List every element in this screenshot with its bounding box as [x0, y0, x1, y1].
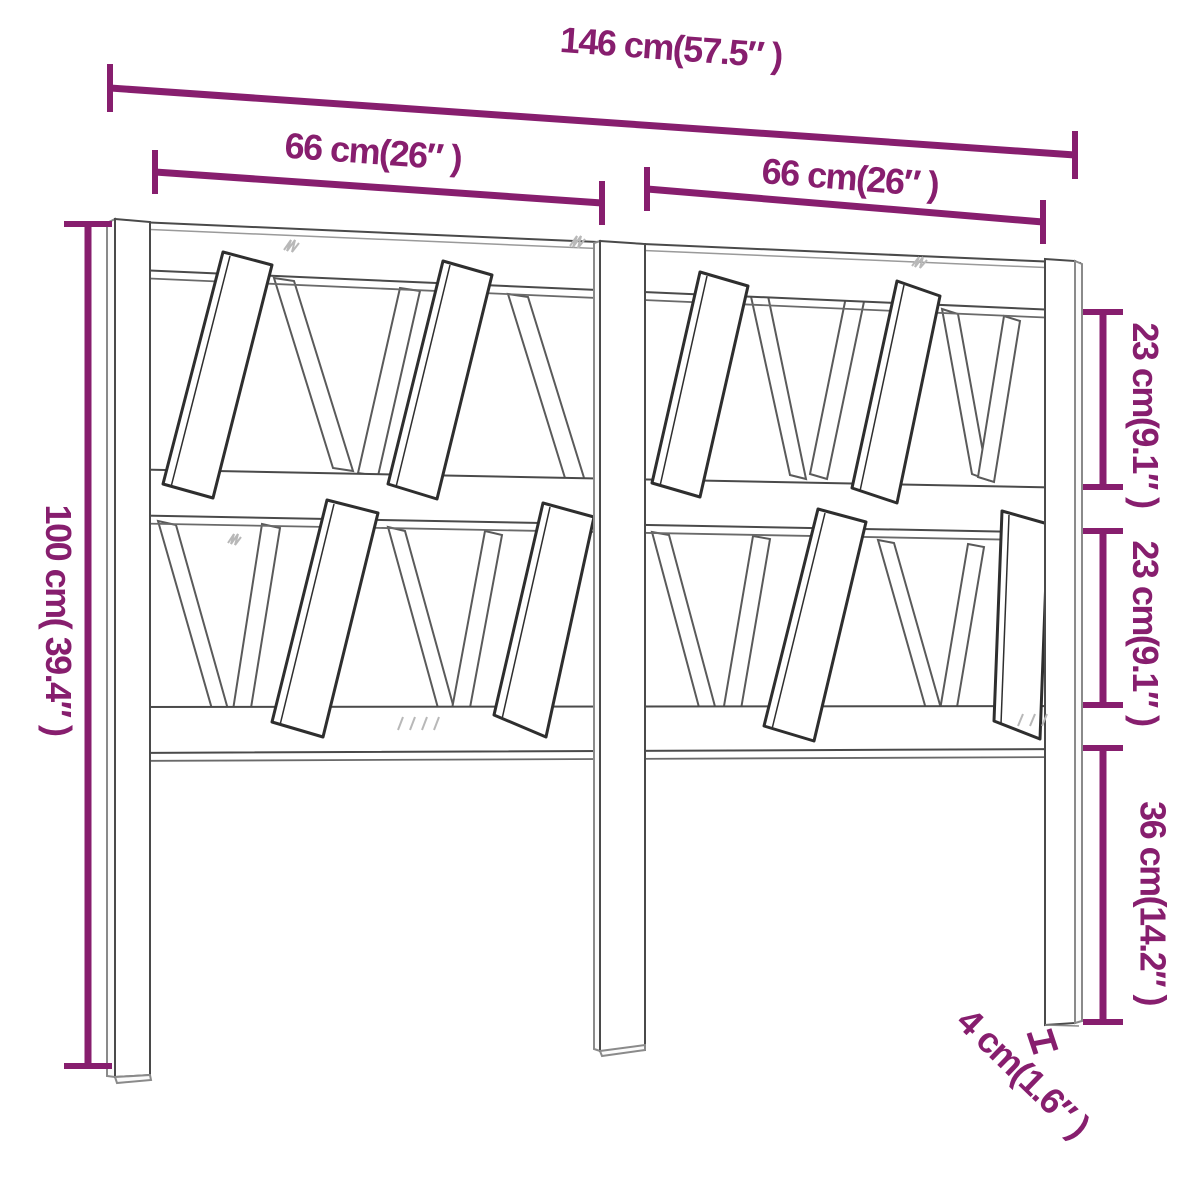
dim-height-label: 100 cm( 39.4″ )	[40, 475, 76, 765]
dim-lower-row-label: 23 cm(9.1″ )	[1127, 508, 1163, 758]
dim-leg-height-label: 36 cm(14.2″ )	[1135, 771, 1171, 1036]
dim-leg-height-line	[1083, 748, 1123, 1022]
product-dimension-diagram: 146 cm(57.5″ ) 66 cm(26″ ) 66 cm(26″ ) 1…	[0, 0, 1200, 1200]
dim-lower-row-line	[1083, 531, 1123, 705]
dim-total-width-line	[110, 64, 1075, 179]
headboard-drawing	[0, 0, 1200, 1200]
dim-upper-row-line	[1083, 312, 1123, 487]
dim-post-thickness-line	[1029, 1029, 1056, 1054]
dim-upper-row-label: 23 cm(9.1″ )	[1127, 290, 1163, 540]
